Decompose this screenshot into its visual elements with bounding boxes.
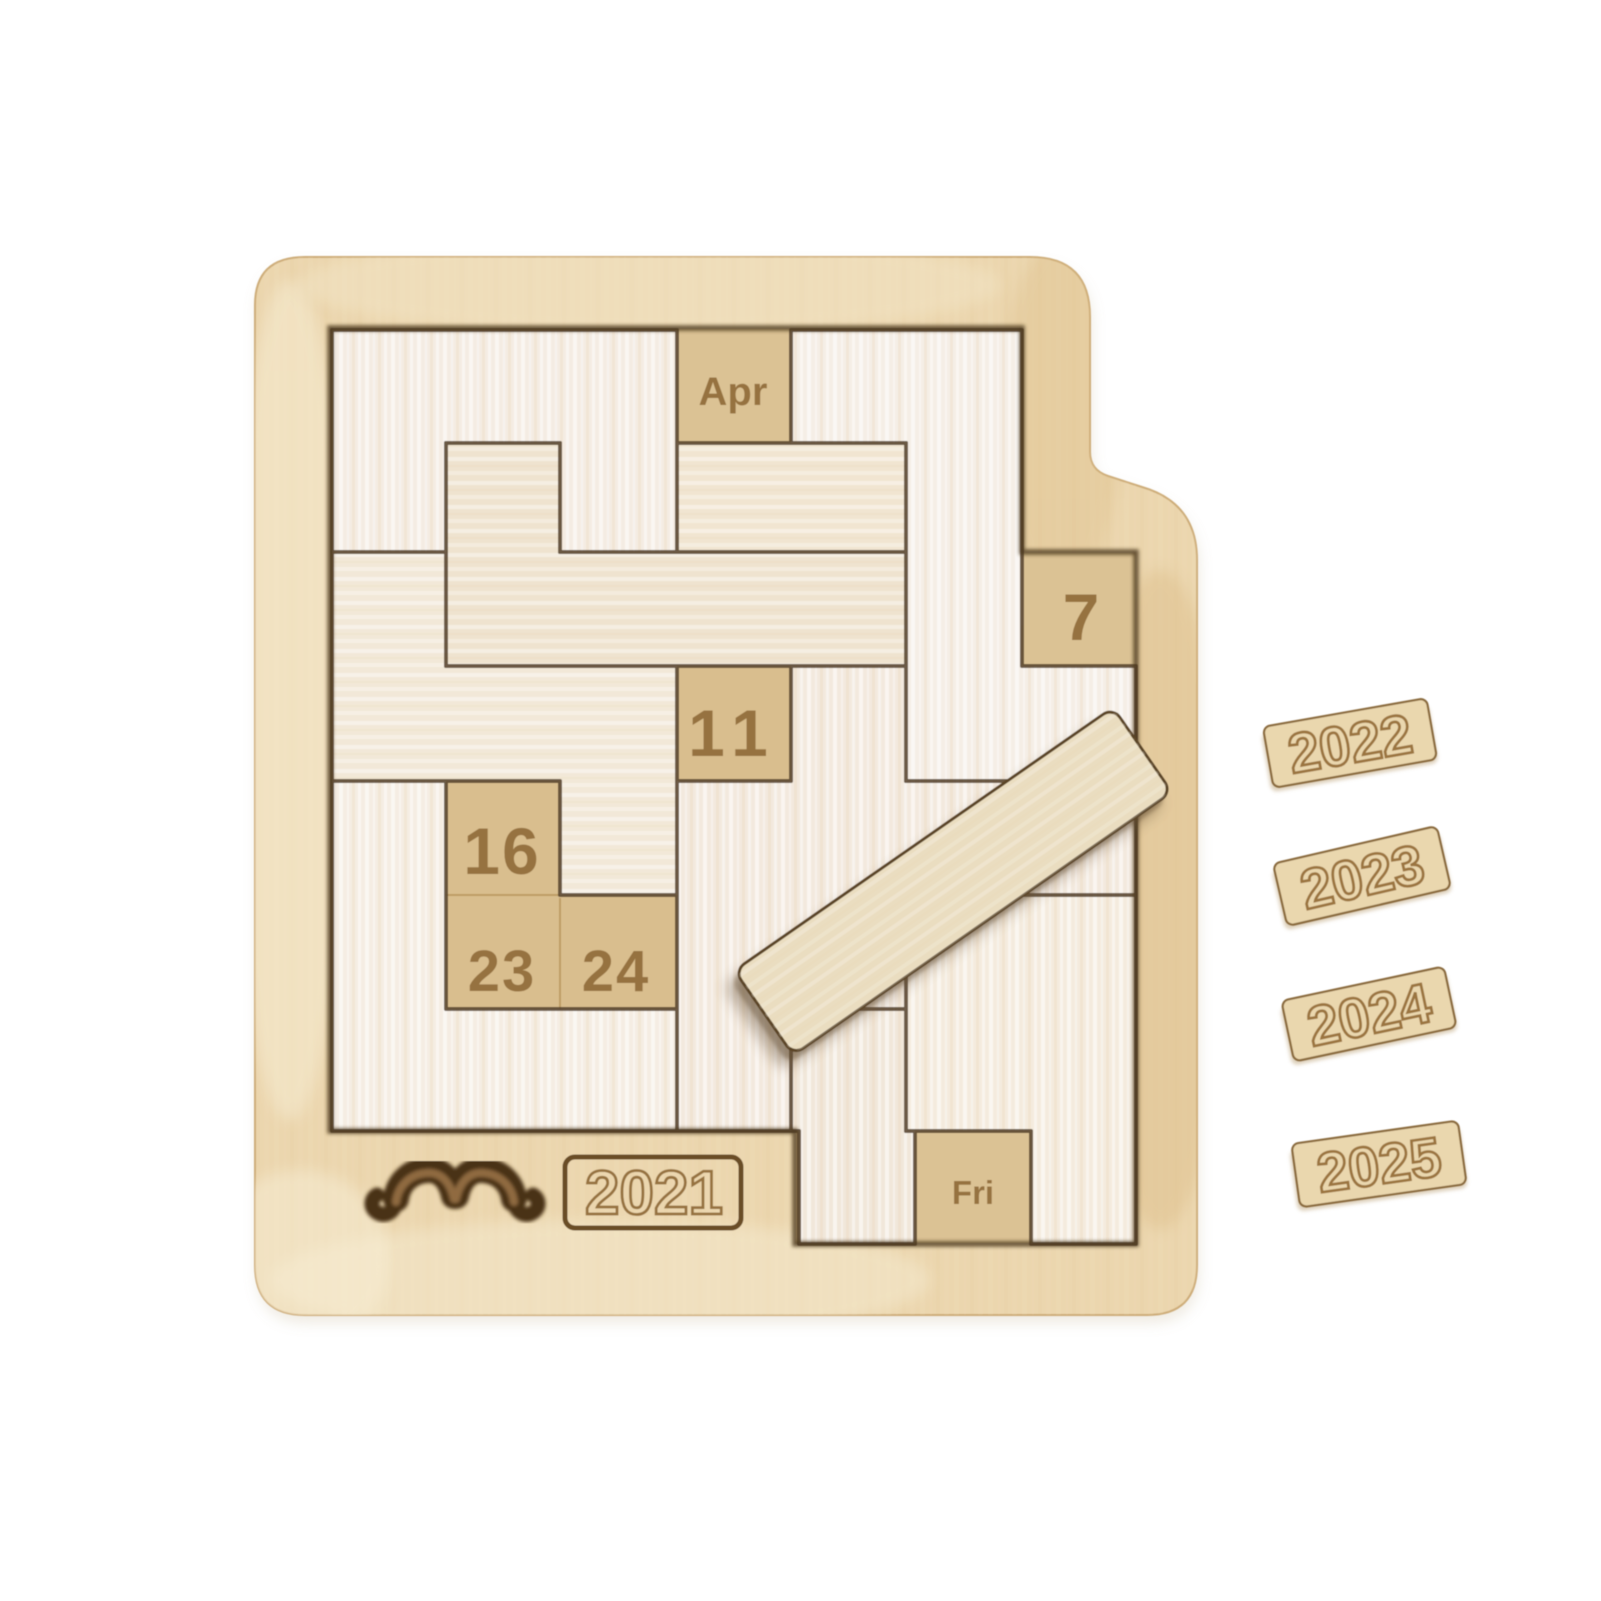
svg-text:16: 16 (463, 814, 540, 888)
svg-text:11: 11 (688, 696, 778, 770)
svg-text:24: 24 (582, 939, 651, 1004)
svg-text:Apr: Apr (699, 370, 768, 414)
svg-text:Fri: Fri (952, 1174, 994, 1211)
svg-text:23: 23 (468, 939, 537, 1004)
svg-text:2021: 2021 (585, 1159, 723, 1228)
svg-text:7: 7 (1063, 580, 1100, 654)
